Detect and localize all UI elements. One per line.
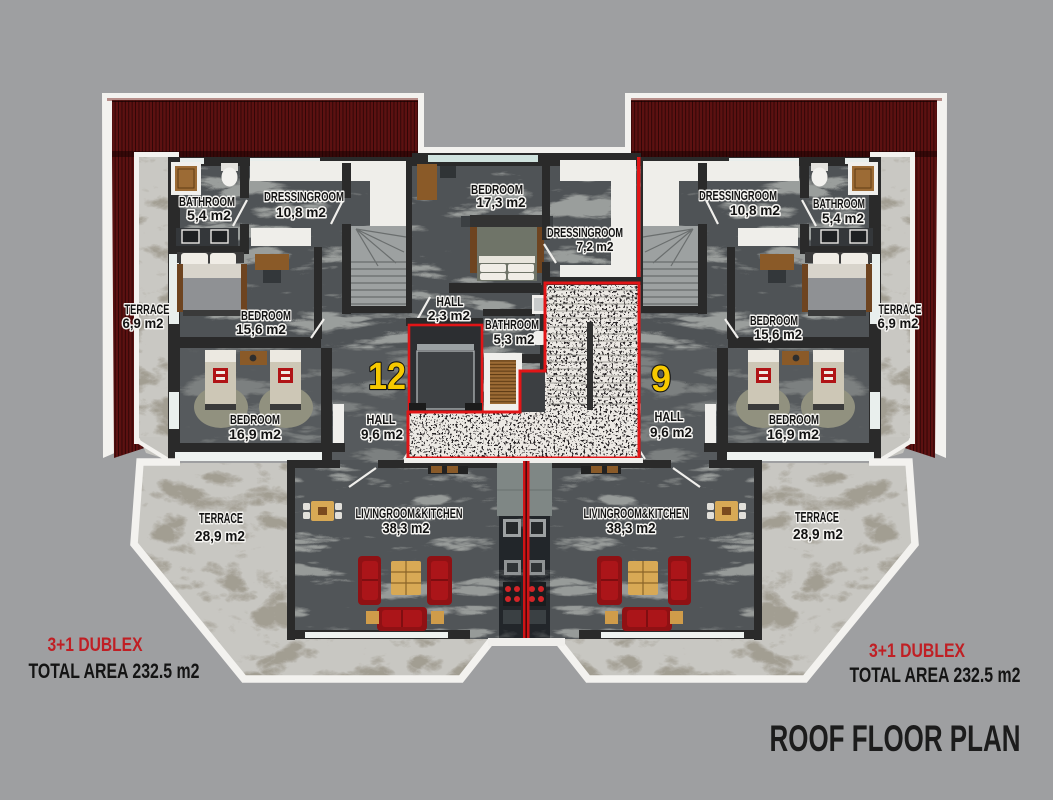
svg-text:5,3 m2: 5,3 m2 bbox=[494, 331, 535, 347]
svg-text:TOTAL AREA 232.5 m2: TOTAL AREA 232.5 m2 bbox=[850, 664, 1021, 687]
svg-text:28,9 m2: 28,9 m2 bbox=[793, 526, 843, 543]
svg-text:3+1 DUBLEX: 3+1 DUBLEX bbox=[869, 641, 965, 662]
svg-text:10,8 m2: 10,8 m2 bbox=[276, 204, 326, 220]
svg-text:5,4 m2: 5,4 m2 bbox=[822, 210, 864, 226]
svg-text:17,3 m2: 17,3 m2 bbox=[477, 194, 526, 210]
svg-text:7,2 m2: 7,2 m2 bbox=[577, 239, 614, 254]
svg-text:9,6 m2: 9,6 m2 bbox=[650, 424, 692, 440]
svg-text:38,3 m2: 38,3 m2 bbox=[607, 520, 656, 537]
svg-text:HALL: HALL bbox=[437, 295, 464, 309]
svg-text:LIVINGROOM&KITCHEN: LIVINGROOM&KITCHEN bbox=[356, 506, 463, 521]
svg-text:15,6 m2: 15,6 m2 bbox=[236, 321, 286, 337]
svg-text:TERRACE: TERRACE bbox=[795, 510, 839, 526]
svg-text:LIVINGROOM&KITCHEN: LIVINGROOM&KITCHEN bbox=[584, 506, 689, 521]
svg-text:3+1 DUBLEX: 3+1 DUBLEX bbox=[48, 635, 143, 656]
svg-text:9: 9 bbox=[651, 358, 671, 399]
svg-text:TOTAL AREA 232.5 m2: TOTAL AREA 232.5 m2 bbox=[29, 660, 200, 683]
svg-text:ROOF FLOOR PLAN: ROOF FLOOR PLAN bbox=[770, 718, 1021, 759]
svg-text:38,3 m2: 38,3 m2 bbox=[383, 520, 430, 537]
svg-text:BEDROOM: BEDROOM bbox=[769, 412, 819, 427]
svg-text:5,4 m2: 5,4 m2 bbox=[187, 207, 231, 223]
svg-text:6,9 m2: 6,9 m2 bbox=[878, 315, 919, 331]
svg-text:16,9 m2: 16,9 m2 bbox=[229, 426, 281, 442]
svg-text:2,3 m2: 2,3 m2 bbox=[428, 308, 470, 323]
svg-text:HALL: HALL bbox=[367, 412, 396, 427]
svg-text:BATHROOM: BATHROOM bbox=[813, 196, 865, 211]
svg-text:28,9 m2: 28,9 m2 bbox=[195, 528, 245, 545]
svg-text:10,8 m2: 10,8 m2 bbox=[730, 202, 780, 218]
svg-text:DRESSINGROOM: DRESSINGROOM bbox=[547, 226, 623, 240]
svg-text:TERRACE: TERRACE bbox=[199, 511, 243, 527]
svg-text:HALL: HALL bbox=[655, 409, 684, 424]
svg-text:BATHROOM: BATHROOM bbox=[485, 317, 539, 332]
svg-text:16,9 m2: 16,9 m2 bbox=[767, 426, 819, 442]
svg-text:6,9 m2: 6,9 m2 bbox=[123, 315, 164, 331]
svg-text:12: 12 bbox=[368, 356, 406, 398]
svg-text:15,6 m2: 15,6 m2 bbox=[754, 326, 802, 342]
svg-text:BEDROOM: BEDROOM bbox=[230, 412, 280, 427]
svg-text:DRESSINGROOM: DRESSINGROOM bbox=[699, 188, 777, 203]
svg-text:DRESSINGROOM: DRESSINGROOM bbox=[264, 189, 344, 204]
svg-text:9,6 m2: 9,6 m2 bbox=[361, 426, 403, 442]
